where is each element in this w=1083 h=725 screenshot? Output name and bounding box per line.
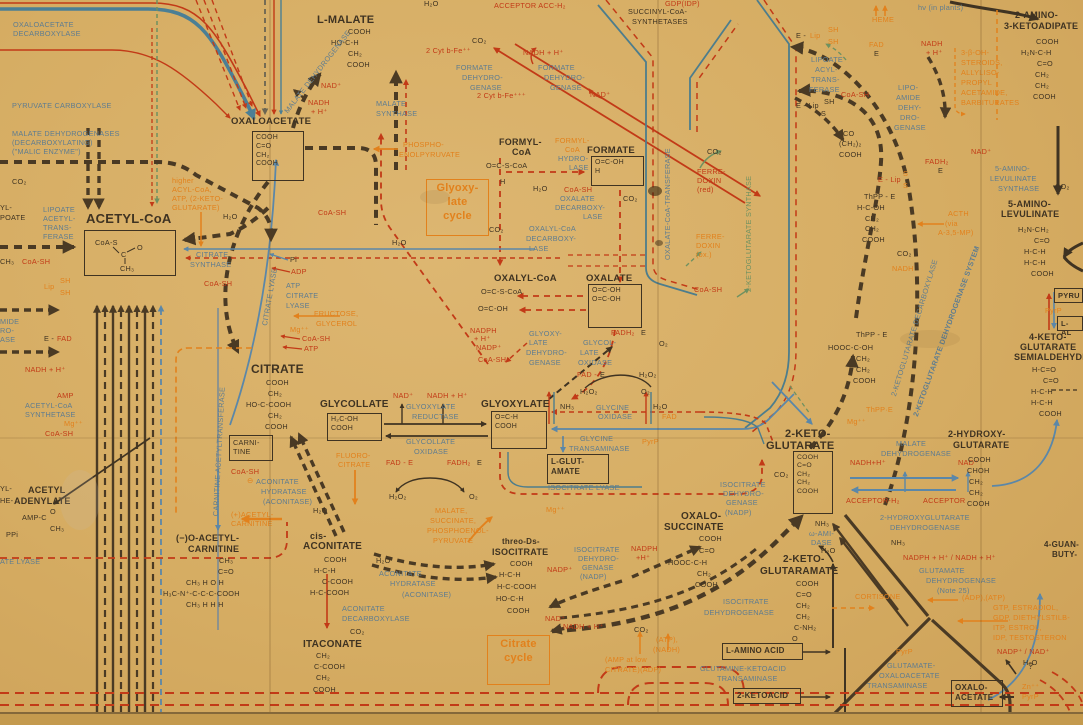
diagram-label: ITP, ESTROL, [993, 624, 1042, 632]
diagram-label: CO₂ [1055, 183, 1070, 191]
diagram-label: FAD [869, 41, 884, 49]
diagram-label: NADH [921, 40, 943, 48]
diagram-label: FADH₂ [611, 329, 635, 337]
diagram-label: GENASE [582, 564, 614, 572]
box-line: cycle [430, 210, 485, 224]
diagram-label: CoA-SH [302, 335, 330, 343]
diagram-label: MALATE DEHYDROGENASES [12, 130, 120, 138]
diagram-label: C=O [699, 547, 715, 555]
paper-stain [655, 240, 663, 246]
diagram-label: DEHYDROGENASE [881, 450, 951, 458]
diagram-label: CH₂ [865, 215, 879, 223]
diagram-label: + H⁺ [926, 49, 942, 57]
diagram-label: SH [60, 289, 71, 297]
diagram-label: A-3,5-MP) [938, 229, 974, 237]
diagram-label: FAD - [577, 371, 597, 379]
diagram-label: COOH [1031, 270, 1054, 278]
pathway-chart: OXALOACETATEDECARBOXYLASEPYRUVATE CARBOX… [0, 0, 1083, 725]
diagram-label: NAD⁺ [321, 82, 341, 90]
metabolite-box: 2-KETOACID [733, 688, 801, 704]
diagram-label: H₂O [223, 213, 238, 221]
box-line: O=C-OH [592, 296, 638, 305]
diagram-label: ATE LYASE [0, 558, 40, 566]
diagram-label: ATP, (2-KETO- [172, 195, 223, 203]
diagram-label: OXALOACETATE [13, 21, 74, 29]
diagram-label: FORMATE [538, 64, 575, 72]
diagram-label: NADP⁺ / NAD⁺ [997, 648, 1049, 656]
diagram-label: H₂O [821, 547, 836, 555]
diagram-label: COOH [862, 236, 885, 244]
box-line: Citrate [491, 638, 546, 652]
diagram-label: CO [843, 130, 854, 138]
diagram-label: H₂N-C-H [1021, 49, 1052, 57]
diagram-label: ACONITATE [303, 542, 362, 553]
diagram-label: ? [1028, 662, 1033, 672]
diagram-label: H₂O [392, 239, 407, 247]
diagram-label: OXALYL-CoA [529, 225, 576, 233]
diagram-label: COOH [507, 607, 530, 615]
diagram-label: E [477, 459, 482, 467]
diagram-label: LASE [569, 164, 589, 172]
box-line: C=O [256, 143, 300, 152]
diagram-label: DRO- [900, 114, 920, 122]
diagram-label: SYNTHASE [376, 110, 417, 118]
diagram-label: higher [172, 177, 194, 185]
diagram-label: CH₂ [865, 225, 879, 233]
diagram-label: CO₂ [897, 250, 912, 258]
diagram-label: PHOSPHO- [403, 141, 444, 149]
paper-stain [60, 470, 100, 530]
diagram-label: GTP, ESTRADIOL, [993, 604, 1058, 612]
diagram-label: AMP-C [22, 514, 47, 522]
diagram-label: ACYL-CoA, [172, 186, 212, 194]
box-line: COOH [256, 160, 300, 169]
diagram-label: C=O [1034, 237, 1050, 245]
diagram-label: COOH [1039, 410, 1062, 418]
diagram-label: YL- [0, 204, 12, 212]
diagram-label: ThPP - E [856, 331, 887, 339]
diagram-label: LATE [529, 339, 548, 347]
diagram-label: H-C-COOH [310, 589, 349, 597]
box-line: CH₂ [797, 479, 829, 487]
box-line: OXALO- [955, 683, 999, 693]
diagram-label: LIPOATE [811, 56, 843, 64]
diagram-label: C=O [796, 591, 812, 599]
diagram-label: H₂O [653, 403, 668, 411]
diagram-label: CH₂ [316, 674, 330, 682]
diagram-label: SH [60, 277, 71, 285]
diagram-label: HYDRATASE [261, 488, 307, 496]
diagram-label: ACONITATE [379, 570, 422, 578]
metabolite-box: COOHC=OCH₂CH₂COOH [793, 451, 833, 514]
diagram-label: IDP, TESTOSTERON [993, 634, 1067, 642]
diagram-label: PyrP [1045, 307, 1062, 315]
diagram-label: (DECARBOXYLATING) [12, 139, 93, 147]
diagram-label: GLYCOLLATE [406, 438, 455, 446]
diagram-label: PROPYL [961, 79, 992, 87]
metabolite-box: COOHC=OCH₂COOH [252, 131, 304, 181]
metabolite-box: L-GLUT-AMATE [547, 454, 609, 484]
diagram-label: H [500, 178, 506, 186]
diagram-label: DECARBOXY- [555, 204, 605, 212]
diagram-label: (AMP at low [605, 656, 647, 664]
diagram-label: CARNITINE [231, 520, 273, 528]
diagram-label: SH [828, 38, 839, 46]
diagram-label: ω-AMI- [809, 530, 834, 538]
paper-stain [420, 190, 450, 204]
diagram-label: PyrP [1022, 693, 1039, 701]
diagram-label: HE- [0, 497, 13, 505]
diagram-label: O=C-OH [478, 305, 508, 313]
diagram-label: C=O [218, 568, 234, 576]
box-line: O=C-H [495, 414, 543, 423]
diagram-label: NADH + H⁺ [563, 623, 603, 631]
metabolite-box: PYRU [1054, 288, 1083, 303]
diagram-label: NADH + H⁺ [523, 49, 563, 57]
diagram-label: CH₃ [0, 258, 14, 266]
diagram-label: O₂ [469, 493, 478, 501]
box-line: cycle [491, 652, 546, 666]
box-line: H [595, 168, 640, 177]
diagram-label: SUCCINATE, [430, 517, 476, 525]
diagram-label: AMP [57, 392, 74, 400]
diagram-label: COOH [796, 580, 819, 588]
box-line: L-AL [1061, 319, 1079, 338]
diagram-label: NH₃ [815, 520, 829, 528]
diagram-label: SYNTHASE [190, 261, 231, 269]
diagram-label: COOH [699, 535, 722, 543]
diagram-label: LATE [580, 349, 599, 357]
diagram-label: E - [796, 32, 806, 40]
diagram-label: O=C-S-CoA [481, 288, 522, 296]
diagram-label: O₂ [659, 340, 668, 348]
diagram-label: HOOC-C-H [668, 559, 707, 567]
diagram-label: ("MALIC ENZYME") [12, 148, 81, 156]
diagram-label: CH₂ [856, 366, 870, 374]
diagram-label: OXALATE [586, 274, 632, 284]
diagram-label: FORMATE [456, 64, 493, 72]
diagram-label: FRUCTOSE, [314, 310, 358, 318]
diagram-label: RO- [0, 327, 14, 335]
box-line: COOH [495, 423, 543, 432]
diagram-label: FLUORO- [336, 452, 371, 460]
diagram-label: TRANSAMINASE [569, 445, 630, 453]
diagram-label: O [792, 635, 798, 643]
diagram-label: (NADP) [580, 573, 607, 581]
diagram-label: NADP⁺ [547, 566, 572, 574]
diagram-label: HEME [872, 16, 894, 24]
diagram-label: CO₂ [623, 195, 638, 203]
diagram-label: H₂O [424, 0, 439, 8]
diagram-label: LEVULINATE [1001, 210, 1059, 220]
diagram-label: HYDRATASE [390, 580, 436, 588]
diagram-label: ACYL- [815, 66, 838, 74]
diagram-label: CH₂ [1035, 71, 1049, 79]
diagram-label: 2-HYDROXYGLUTARATE [880, 514, 970, 522]
diagram-label: CH₃ [50, 525, 64, 533]
diagram-label: H-C-H [1024, 248, 1046, 256]
diagram-label: GLYCEROL [316, 320, 357, 328]
diagram-label: NADP⁺ [476, 344, 501, 352]
diagram-label: S [903, 170, 908, 178]
diagram-label: REDUCTASE [412, 413, 459, 421]
diagram-label: CH₂ [796, 602, 810, 610]
diagram-label: Mg⁺⁺ [290, 326, 309, 334]
diagram-label: FAD [662, 413, 677, 421]
diagram-label: PYRUVATE [433, 537, 473, 545]
diagram-label: FERRE- [697, 168, 726, 176]
diagram-label: L-MALATE [317, 15, 374, 27]
diagram-label: DECARBOXYLASE [13, 30, 81, 38]
diagram-label: threo-Ds- [502, 538, 540, 546]
diagram-label: DECARBOXY- [526, 235, 576, 243]
diagram-label: GENASE [550, 84, 582, 92]
diagram-label: CO₂ [774, 471, 789, 479]
diagram-label: E [600, 371, 605, 379]
box-line: ACETATE [955, 693, 999, 703]
diagram-label: ⊖ [247, 477, 253, 485]
diagram-label: DEHYDRO- [526, 349, 567, 357]
box-line: O=C-OH [595, 159, 640, 168]
diagram-label: ITACONATE [303, 640, 362, 651]
diagram-label: ISOCITRATE [492, 548, 548, 558]
diagram-label: NH₃ [560, 403, 574, 411]
diagram-label: GLYOXYLATE [406, 403, 456, 411]
diagram-label: CH₂ [348, 50, 362, 58]
diagram-label: Mg⁺⁺ [847, 418, 866, 426]
diagram-label: CoA [565, 146, 580, 154]
diagram-label: GLUTAMATE [919, 567, 965, 575]
diagram-label: ISOCITRATE [723, 598, 769, 606]
diagram-label: H₂O [313, 507, 328, 515]
diagram-label: HYDRO- [558, 155, 588, 163]
diagram-label: SH [824, 98, 835, 106]
diagram-label: PHOSPHOENOL- [427, 527, 489, 535]
paper-crease [269, 0, 271, 725]
diagram-label: GLYOXY- [529, 330, 562, 338]
diagram-label: GLUTAMATE- [887, 662, 935, 670]
diagram-label: GLUTARATE) [172, 204, 220, 212]
diagram-label: (CH₂)₂ [839, 140, 862, 148]
diagram-label: CH₂ [697, 570, 711, 578]
diagram-label: 5-AMINO- [995, 165, 1030, 173]
diagram-label: GLYCOLLATE [320, 400, 389, 411]
diagram-label: CITRATE [286, 292, 318, 300]
diagram-label: H-C-H [1031, 399, 1053, 407]
diagram-label: H₂O₂ [389, 493, 407, 501]
paper-crease [657, 0, 659, 725]
diagram-label: Mg⁺⁺ [546, 506, 565, 514]
diagram-label: DEHYDRO- [723, 490, 764, 498]
diagram-label: ACTH [948, 210, 969, 218]
diagram-label: 2-KETOGLUTARATE SYNTHASE [745, 176, 753, 292]
table-edge-strip [0, 712, 1083, 725]
diagram-label: ACONITATE [342, 605, 385, 613]
diagram-label: ThPP·E [866, 406, 893, 414]
diagram-label: C-NH₂ [794, 624, 816, 632]
box-line: CARNI- [233, 438, 269, 447]
diagram-label: DEHYDROGENASE [926, 577, 996, 585]
diagram-label: (ATP), [656, 636, 678, 644]
diagram-label: +H⁺ [636, 554, 650, 562]
metabolite-box: O=C-OHH [591, 156, 644, 186]
diagram-label: GDP, DIETHYLSTILB- [993, 614, 1070, 622]
diagram-label: GENASE [726, 499, 758, 507]
diagram-label: ACCEPTOR [923, 497, 965, 505]
box-line: 2-KETOACID [737, 691, 797, 701]
diagram-label: NADH + H⁺ [427, 392, 467, 400]
diagram-label: TRANSAMINASE [717, 675, 778, 683]
diagram-label: AMIDE [896, 94, 920, 102]
diagram-label: ATP [286, 282, 300, 290]
diagram-label: OXALOACETATE [879, 672, 940, 680]
metabolite-box: L-AMINO ACID [722, 643, 803, 660]
metabolite-box: O=C-OHO=C-OH [588, 284, 642, 328]
diagram-label: COOH [347, 61, 370, 69]
diagram-label: FERASE [809, 86, 840, 94]
diagram-label: CO₂ [350, 628, 365, 636]
diagram-label: COOH [695, 581, 718, 589]
diagram-label: CH₃ [219, 557, 233, 565]
diagram-label: OXIDASE [578, 359, 612, 367]
diagram-label: COOH [853, 377, 876, 385]
diagram-label: Mg⁺⁺ [64, 420, 83, 428]
diagram-label: CoA-SH [694, 286, 722, 294]
box-line: COOH [797, 454, 829, 462]
diagram-label: O [50, 508, 56, 516]
diagram-label: C=O [1043, 377, 1059, 385]
diagram-label: FORMATE [587, 146, 635, 156]
diagram-label: Lip [810, 32, 821, 40]
diagram-label: CARNITINE [188, 545, 239, 555]
diagram-label: 3-KETOADIPATE [1004, 22, 1078, 32]
box-line: L-GLUT- [551, 457, 605, 467]
diagram-label: CoA-SH [22, 258, 50, 266]
diagram-label: SUCCINATE [664, 523, 724, 534]
diagram-label: ACETYL-CoA [86, 212, 172, 226]
diagram-label: OXALOACETATE [231, 117, 311, 127]
diagram-label: S [821, 110, 826, 118]
diagram-label: CoA-SH [204, 280, 232, 288]
diagram-label: BUTY- [1052, 551, 1077, 559]
metabolite-box: Glyoxy-latecycle [426, 179, 489, 236]
diagram-label: FADH₂ [925, 158, 949, 166]
diagram-label: CH₃ H O H [186, 579, 224, 587]
diagram-label: CITRATE [196, 251, 228, 259]
box-line: AMATE [551, 467, 605, 477]
box-line: L-AMINO ACID [726, 646, 799, 656]
diagram-label: hν (in plants) [918, 4, 963, 12]
box-line: PYRU [1058, 291, 1079, 300]
diagram-label: NAD⁺ [590, 91, 610, 99]
diagram-label: H₂O [376, 557, 391, 565]
diagram-label: FORMYL- [555, 137, 590, 145]
diagram-label: GENASE [894, 124, 926, 132]
diagram-label: OXALATE-CoA-TRANSFERASE [664, 148, 672, 260]
diagram-label: H-C-H [499, 571, 521, 579]
diagram-label: FERRE- [696, 233, 725, 241]
diagram-label: COOH [1033, 93, 1056, 101]
diagram-label: C-COOH [314, 663, 345, 671]
diagram-label: CO₂ [489, 226, 504, 234]
diagram-label: NADH+H⁺ [850, 459, 886, 467]
diagram-label: SYNTHASE [998, 185, 1039, 193]
diagram-label: ACETYL- [43, 215, 76, 223]
diagram-label: ISOCITRATE LYASE [548, 484, 620, 492]
diagram-label: FADH₂ [447, 459, 471, 467]
diagram-label: SYNTHETASE [25, 411, 76, 419]
diagram-label: H₂N-CH₂ [1018, 226, 1049, 234]
diagram-label: CO₂ [472, 37, 487, 45]
diagram-label: CoA-SH [478, 356, 506, 364]
diagram-label: NAD⁺ [393, 392, 413, 400]
diagram-label: Lip [44, 283, 55, 291]
paper-stain [900, 330, 960, 348]
box-line: H₂C-OH [331, 416, 378, 425]
diagram-label: C-COOH [322, 578, 353, 586]
diagram-label: CoA-SH [841, 91, 869, 99]
metabolite-box: Citratecycle [487, 635, 550, 685]
diagram-label: E [938, 167, 943, 175]
diagram-label: HO-C-H [496, 595, 524, 603]
diagram-label: COOH [839, 151, 862, 159]
box-line: TINE [233, 447, 269, 456]
diagram-label: ACCEPTOR ACC-H₂ [494, 2, 566, 10]
box-line: COOH [797, 488, 829, 496]
diagram-label: NADH + H⁺ [25, 366, 65, 374]
diagram-label: ACETYL-CoA [25, 402, 73, 410]
diagram-label: 3-β-OH- [961, 49, 989, 57]
diagram-label: (ACONITASE) [402, 591, 451, 599]
paper-stain [648, 186, 662, 196]
diagram-label: NADH [308, 99, 330, 107]
diagram-label: S [903, 182, 908, 190]
diagram-label: GLUTARAMATE [760, 567, 838, 578]
metabolite-box: L-AL [1057, 316, 1083, 331]
diagram-label: H-C-H [1031, 388, 1053, 396]
diagram-label: H₂O₂ [639, 371, 657, 379]
diagram-label: COOH [967, 500, 990, 508]
diagram-label: CHOH [967, 467, 990, 475]
diagram-label: E - Lip [878, 176, 901, 184]
diagram-label: H₂O [533, 185, 548, 193]
diagram-label: YL- [0, 485, 12, 493]
diagram-label: (+)ACETYL- [231, 511, 273, 519]
diagram-label: ThPP - E [864, 193, 895, 201]
diagram-label: PyrP [896, 648, 913, 656]
diagram-label: TRANS- [811, 76, 840, 84]
diagram-label: PPi [6, 531, 18, 539]
metabolite-box [84, 230, 176, 276]
diagram-label: NADH [892, 265, 914, 273]
diagram-label: H-C-H [1024, 259, 1046, 267]
diagram-label: MALATE, [435, 507, 467, 515]
diagram-label: FERASE [43, 233, 74, 241]
diagram-label: 2-KETO- [783, 555, 825, 566]
diagram-label: DEHYDROGENASE [890, 524, 960, 532]
paper-crease [0, 437, 1083, 439]
diagram-label: O₂ [641, 388, 650, 396]
diagram-label: GDP(IDP) [665, 0, 700, 8]
diagram-label: DOXIN [697, 177, 721, 185]
diagram-label: MALATE [896, 440, 926, 448]
diagram-label: CO₂ [12, 178, 27, 186]
diagram-label: ADP [291, 268, 307, 276]
diagram-label: NH₃ [891, 539, 905, 547]
diagram-label: DEHYDRO- [462, 74, 503, 82]
diagram-label: CITRATE)(ADP) [605, 666, 661, 674]
diagram-label: FAD [57, 335, 72, 343]
